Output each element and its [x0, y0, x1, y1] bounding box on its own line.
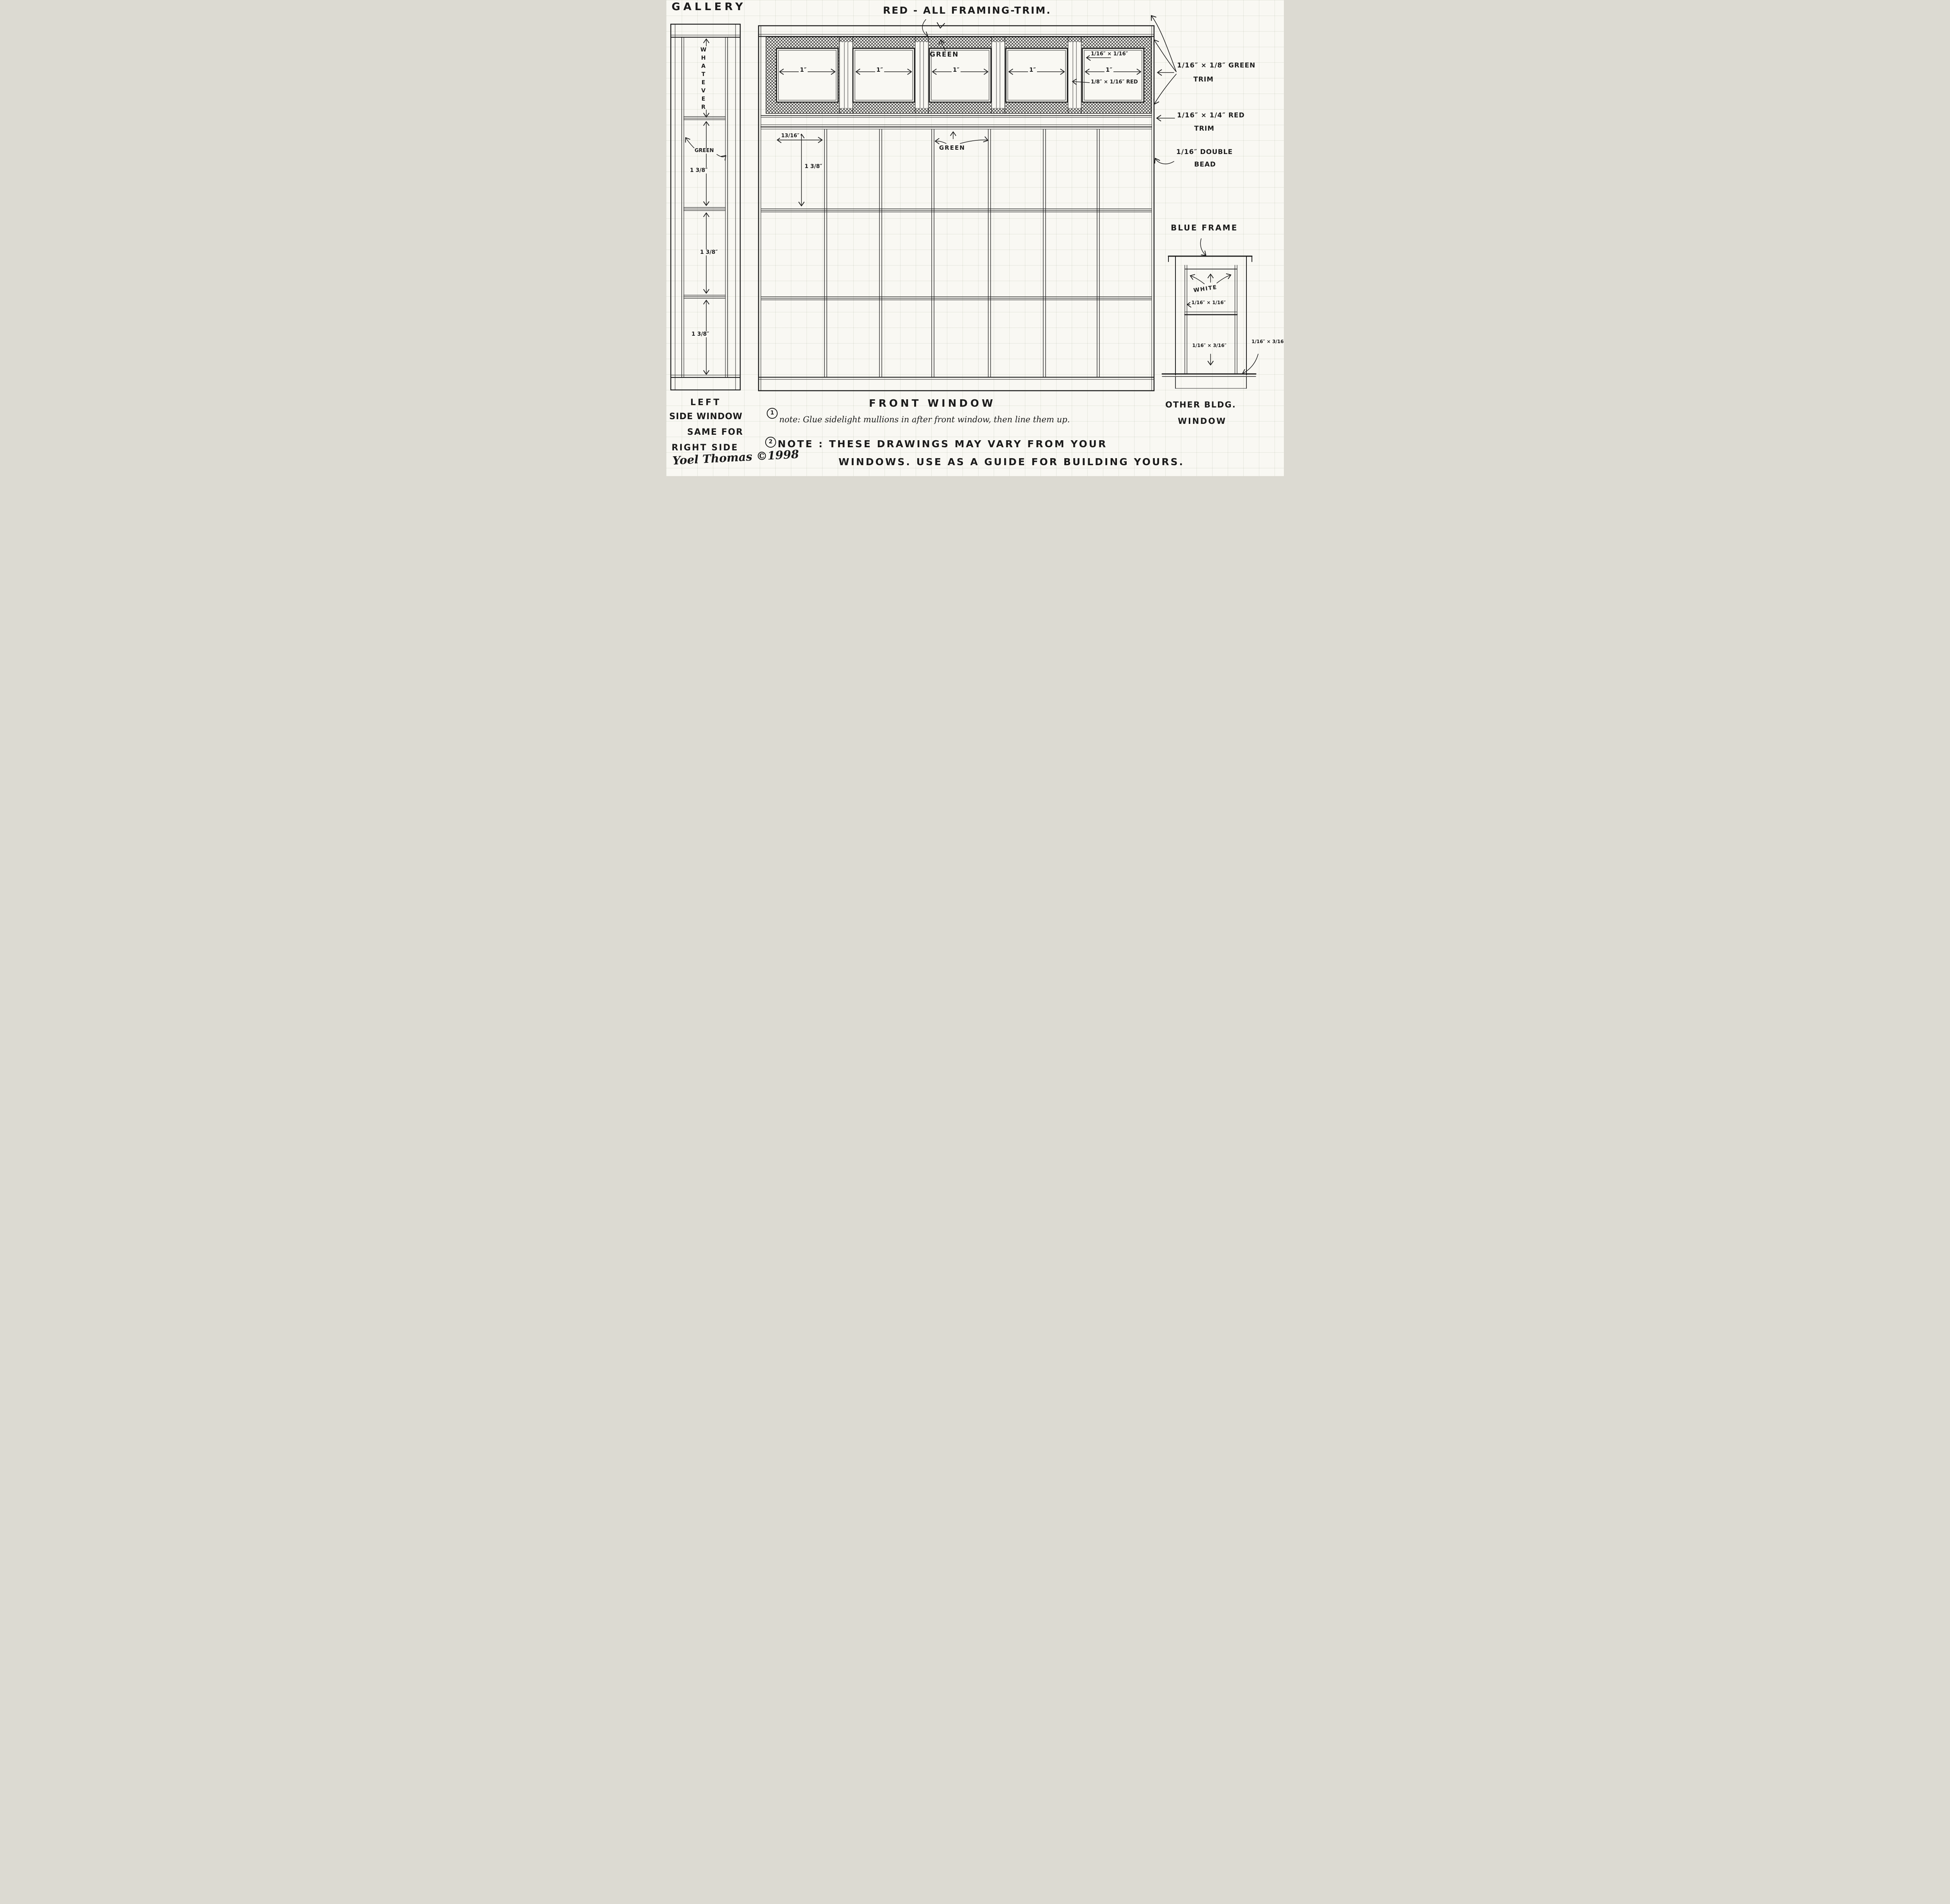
mullion-spacing-dim: 13/16″ [780, 133, 801, 139]
left-caption-3: SAME FOR [687, 428, 743, 437]
blue-frame-label: BLUE FRAME [1171, 224, 1238, 232]
double-bead-annotation: 1/16″ DOUBLE [1176, 149, 1233, 156]
left-dim-3: 1 3/8″ [690, 331, 710, 337]
other-window-caption-1: OTHER BLDG. [1165, 401, 1236, 409]
red-trim-annotation-2: TRIM [1194, 126, 1214, 133]
transom-inner-trim-label: 1/16″ × 1/16″ [1090, 51, 1129, 57]
annotation-arrows [1151, 16, 1176, 164]
note1-text: note: Glue sidelight mullions in after f… [779, 416, 1070, 424]
lower-bar-label: 1/16″ × 3/16″ [1191, 343, 1228, 348]
transom-green-label: GREEN [930, 51, 959, 58]
gallery-title: GALLERY [672, 2, 746, 12]
drawing-sheet: GALLERY RED - ALL FRAMING-TRIM. WHATEVER… [666, 0, 1284, 476]
left-caption-2: SIDE WINDOW [669, 413, 743, 422]
grid-green-label: GREEN [939, 145, 965, 151]
note1-number-badge: 1 [767, 408, 778, 419]
row-height-dim: 1 3/8″ [803, 164, 823, 170]
note2-line-1: NOTE : THESE DRAWINGS MAY VARY FROM YOUR [778, 439, 1107, 449]
transom-pane-dim-4: 1″ [1028, 67, 1037, 73]
note2-line-2: WINDOWS. USE AS A GUIDE FOR BUILDING YOU… [838, 457, 1184, 467]
transom-mullion-trim-label: 1/8″ × 1/16″ RED [1090, 80, 1139, 85]
sill-trim-label: 1/16″ × 3/16″ [1250, 339, 1284, 344]
transom-pane-dim-1: 1″ [799, 67, 808, 73]
transom-pane-dim-2: 1″ [875, 67, 884, 73]
left-caption-1: LEFT [690, 399, 721, 407]
red-trim-annotation: 1/16″ × 1/4″ RED [1177, 112, 1245, 119]
left-dim-1: 1 3/8″ [689, 168, 709, 174]
front-window-lines [759, 19, 1154, 391]
other-window-lines [1162, 239, 1258, 388]
whatever-label: WHATEVER [700, 47, 706, 112]
front-window-caption: FRONT WINDOW [869, 399, 996, 409]
green-trim-annotation-2: TRIM [1193, 76, 1214, 83]
left-green-label: GREEN [693, 148, 715, 154]
green-trim-annotation: 1/16″ × 1/8″ GREEN [1177, 62, 1255, 69]
double-bead-annotation-2: BEAD [1194, 161, 1216, 168]
note2-number-badge: 2 [765, 437, 776, 448]
glazing-bar-label: 1/16″ × 1/16″ [1190, 300, 1227, 305]
transom-pane-dim-5: 1″ [1104, 67, 1113, 73]
other-window-caption-2: WINDOW [1178, 417, 1227, 426]
top-annotation: RED - ALL FRAMING-TRIM. [883, 5, 1051, 16]
left-dim-2: 1 3/8″ [699, 250, 719, 255]
transom-pane-dim-3: 1″ [952, 67, 961, 73]
